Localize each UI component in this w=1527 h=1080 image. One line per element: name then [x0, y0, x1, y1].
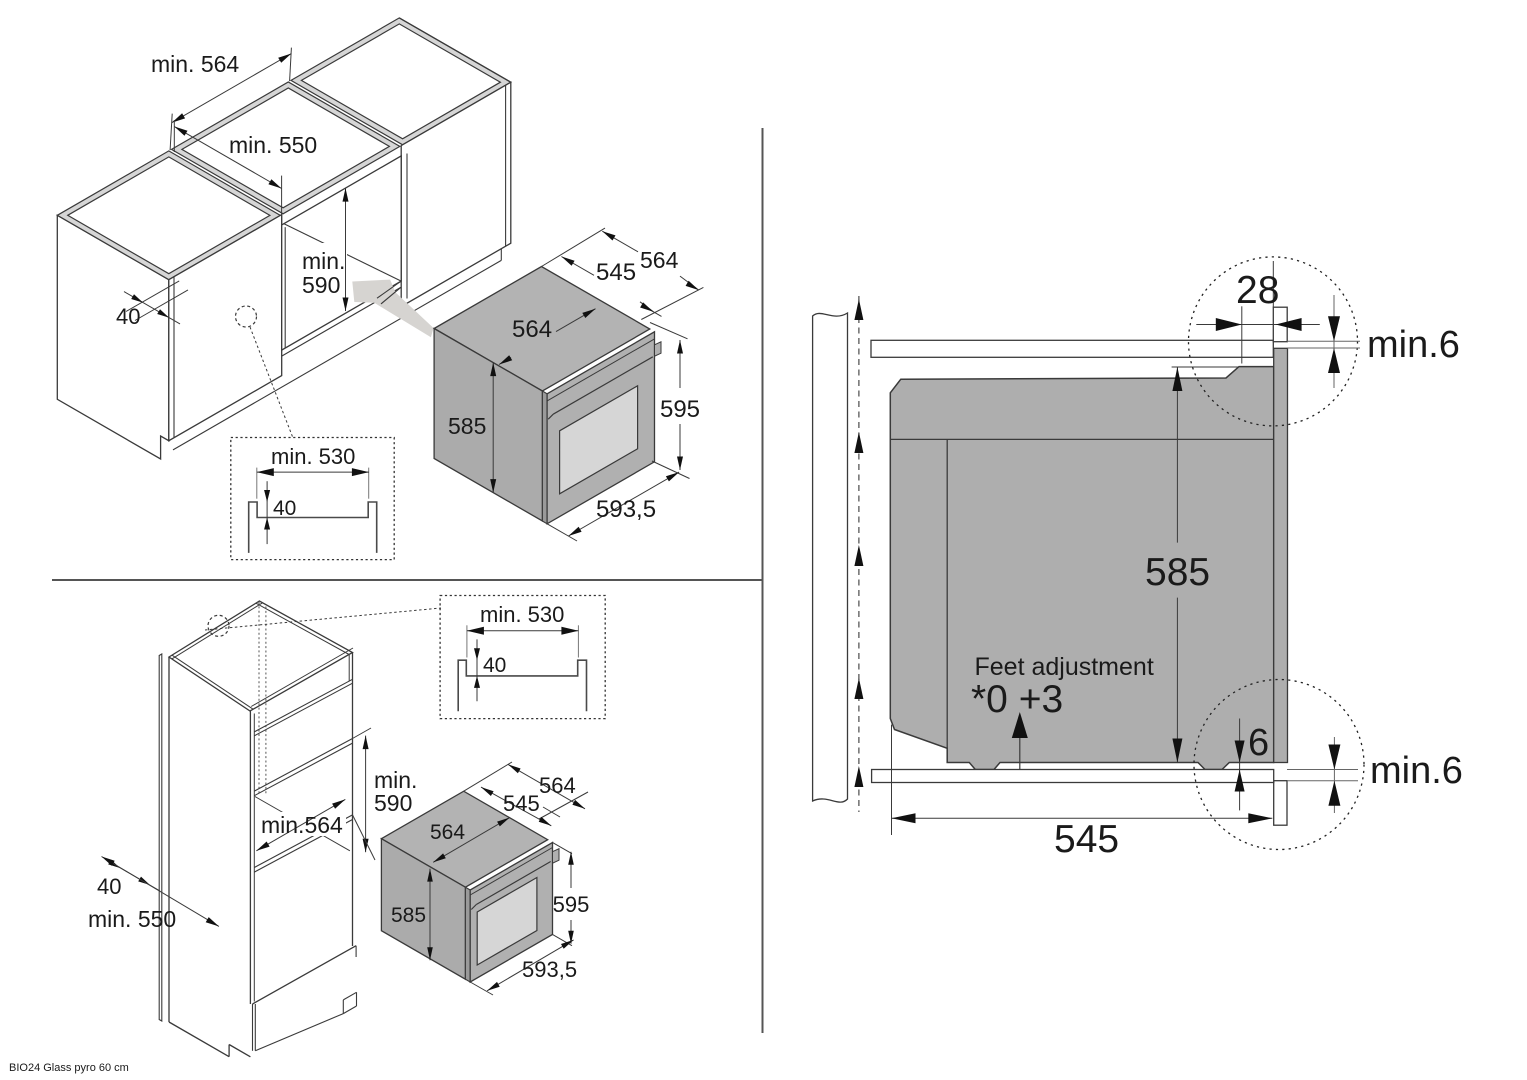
- svg-text:545: 545: [1054, 818, 1119, 861]
- svg-text:min.: min.: [302, 248, 345, 274]
- svg-text:min. 550: min. 550: [229, 132, 317, 158]
- svg-text:545: 545: [596, 259, 636, 286]
- svg-text:585: 585: [1145, 551, 1210, 594]
- svg-text:564: 564: [539, 773, 576, 798]
- svg-text:595: 595: [553, 892, 590, 917]
- svg-text:min.564: min.564: [261, 812, 343, 838]
- svg-text:40: 40: [483, 654, 506, 677]
- svg-text:40: 40: [97, 874, 121, 899]
- svg-text:564: 564: [512, 316, 552, 343]
- svg-text:min. 564: min. 564: [151, 51, 239, 77]
- svg-text:585: 585: [448, 413, 486, 439]
- svg-text:min. 550: min. 550: [88, 906, 176, 932]
- svg-text:min. 530: min. 530: [480, 602, 564, 627]
- svg-text:590: 590: [302, 272, 340, 298]
- svg-text:595: 595: [660, 396, 700, 423]
- svg-text:min.6: min.6: [1367, 324, 1460, 366]
- svg-text:40: 40: [273, 497, 296, 520]
- svg-text:40: 40: [116, 304, 140, 329]
- svg-text:564: 564: [430, 821, 465, 844]
- svg-text:590: 590: [374, 790, 412, 816]
- svg-text:28: 28: [1236, 269, 1279, 312]
- svg-text:564: 564: [640, 247, 679, 273]
- svg-text:min.6: min.6: [1370, 750, 1463, 792]
- svg-text:BIO24 Glass pyro 60 cm: BIO24 Glass pyro 60 cm: [9, 1062, 129, 1074]
- svg-text:585: 585: [391, 904, 426, 927]
- svg-text:min. 530: min. 530: [271, 444, 355, 469]
- svg-text:593,5: 593,5: [596, 496, 656, 523]
- svg-text:*0 +3: *0 +3: [971, 678, 1063, 721]
- svg-text:6: 6: [1248, 722, 1269, 764]
- svg-text:545: 545: [503, 791, 540, 816]
- svg-text:593,5: 593,5: [522, 957, 577, 982]
- svg-text:Feet adjustment: Feet adjustment: [975, 653, 1154, 681]
